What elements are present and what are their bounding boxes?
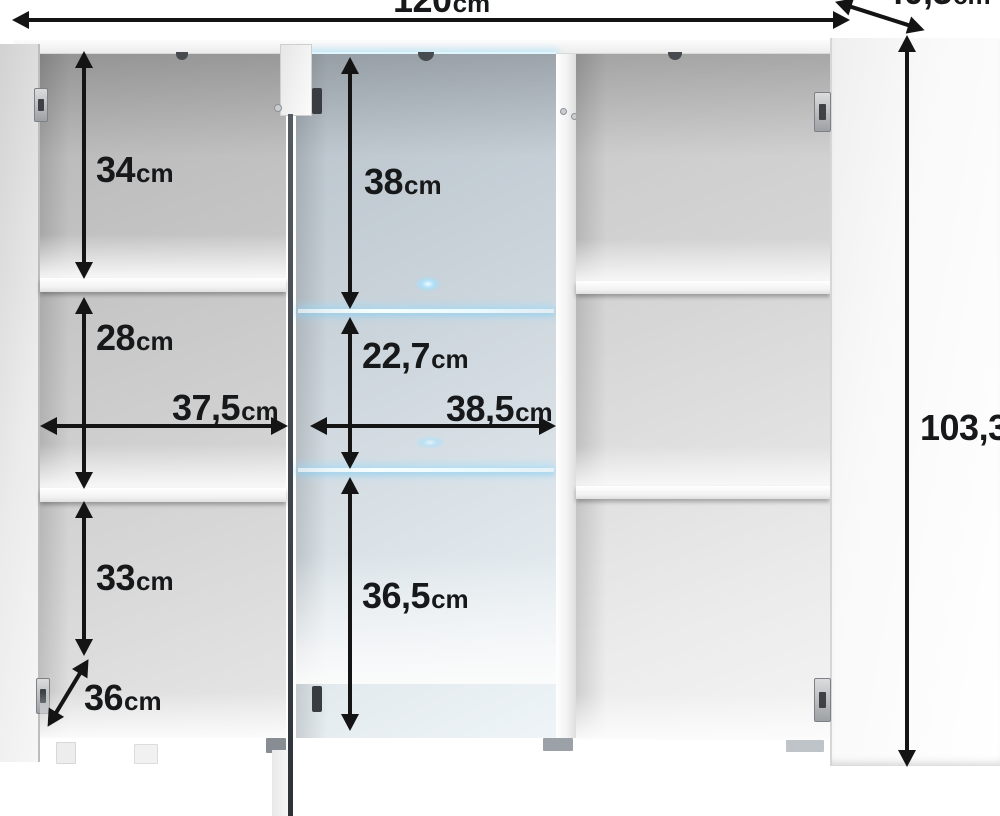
dim-value: 38 [364, 161, 403, 202]
glass-shelf [298, 468, 554, 472]
shelf-floor-highlight [40, 692, 286, 738]
dim-value: 38,5 [446, 388, 514, 429]
dim-value: 34 [96, 149, 135, 190]
middle-door-top-edge [280, 44, 312, 116]
dim-mid-top-label: 38cm [364, 164, 442, 200]
glass-shelf [298, 309, 554, 313]
dim-unit: cm [431, 584, 469, 614]
dim-height-label: 103,3cm [920, 410, 1000, 446]
dim-unit: cm [241, 396, 279, 426]
left-door-open [0, 44, 40, 762]
center-divider [556, 54, 576, 738]
cam-bolt-icon [668, 52, 682, 60]
dim-width-label: 120cm [393, 0, 490, 18]
dim-unit: cm [124, 686, 162, 716]
hinge-icon [814, 678, 831, 722]
dim-mid-middle-arrow [348, 333, 352, 453]
led-spot-icon [418, 52, 434, 61]
hinge-pin-icon [274, 104, 282, 112]
right-compartments [576, 54, 830, 738]
glass-door-hinge-icon [312, 88, 322, 114]
dim-mid-width-label: 38,5cm [446, 391, 553, 427]
shelf-floor-highlight [296, 554, 556, 684]
dim-mid-top-arrow [348, 73, 352, 293]
dim-unit: cm [136, 566, 174, 596]
dim-value: 33 [96, 557, 135, 598]
dim-unit: cm [136, 158, 174, 188]
dim-value: 36,5 [362, 575, 430, 616]
led-glow [414, 276, 442, 292]
shelf [576, 486, 830, 499]
dim-depth-label: 40,5cm [884, 0, 991, 10]
hinge-pin-icon [560, 108, 567, 115]
dim-value: 37,5 [172, 387, 240, 428]
dim-left-width-label: 37,5cm [172, 390, 279, 426]
shelf [576, 281, 830, 294]
dim-mid-bottom-arrow [348, 493, 352, 715]
cam-bolt-icon [176, 52, 188, 60]
dim-unit: cm [404, 170, 442, 200]
shelf [40, 488, 286, 502]
dim-value: 103,3 [920, 407, 1000, 448]
middle-door-glass-edge [288, 114, 293, 816]
dim-height-arrow [905, 51, 909, 751]
dim-mid-middle-label: 22,7cm [362, 338, 469, 374]
dim-value: 36 [84, 677, 123, 718]
hinge-icon [34, 88, 48, 122]
dim-unit: cm [515, 397, 553, 427]
dim-left-bottom-label: 33cm [96, 560, 174, 596]
dim-unit: cm [431, 344, 469, 374]
dim-mid-bottom-label: 36,5cm [362, 578, 469, 614]
cabinet-foot [543, 738, 573, 751]
dim-left-bottom-arrow [82, 517, 86, 640]
dimension-diagram: 120cm 40,5cm 103,3cm 34cm 28cm 37,5cm 33… [0, 0, 1000, 816]
led-glow [414, 436, 446, 449]
dim-left-middle-arrow [82, 313, 86, 473]
dim-unit: cm [136, 326, 174, 356]
dim-unit: cm [453, 0, 491, 18]
dim-value: 40,5 [884, 0, 952, 12]
dim-left-middle-label: 28cm [96, 320, 174, 356]
glass-door-hinge-icon [312, 686, 322, 712]
dim-unit: cm [953, 0, 991, 10]
dim-value: 120 [393, 0, 452, 20]
dim-value: 28 [96, 317, 135, 358]
dim-left-top-arrow [82, 67, 86, 263]
dim-interior-depth-label: 36cm [84, 680, 162, 716]
cabinet-foot [134, 744, 158, 764]
dim-left-top-label: 34cm [96, 152, 174, 188]
shelf [40, 278, 286, 292]
hinge-icon [814, 92, 831, 132]
dim-value: 22,7 [362, 335, 430, 376]
shelf-floor-highlight [576, 239, 830, 285]
right-door-open [830, 38, 1000, 766]
shelf-floor-highlight [576, 694, 830, 740]
cabinet-foot [786, 740, 824, 752]
cabinet-foot [56, 742, 76, 764]
